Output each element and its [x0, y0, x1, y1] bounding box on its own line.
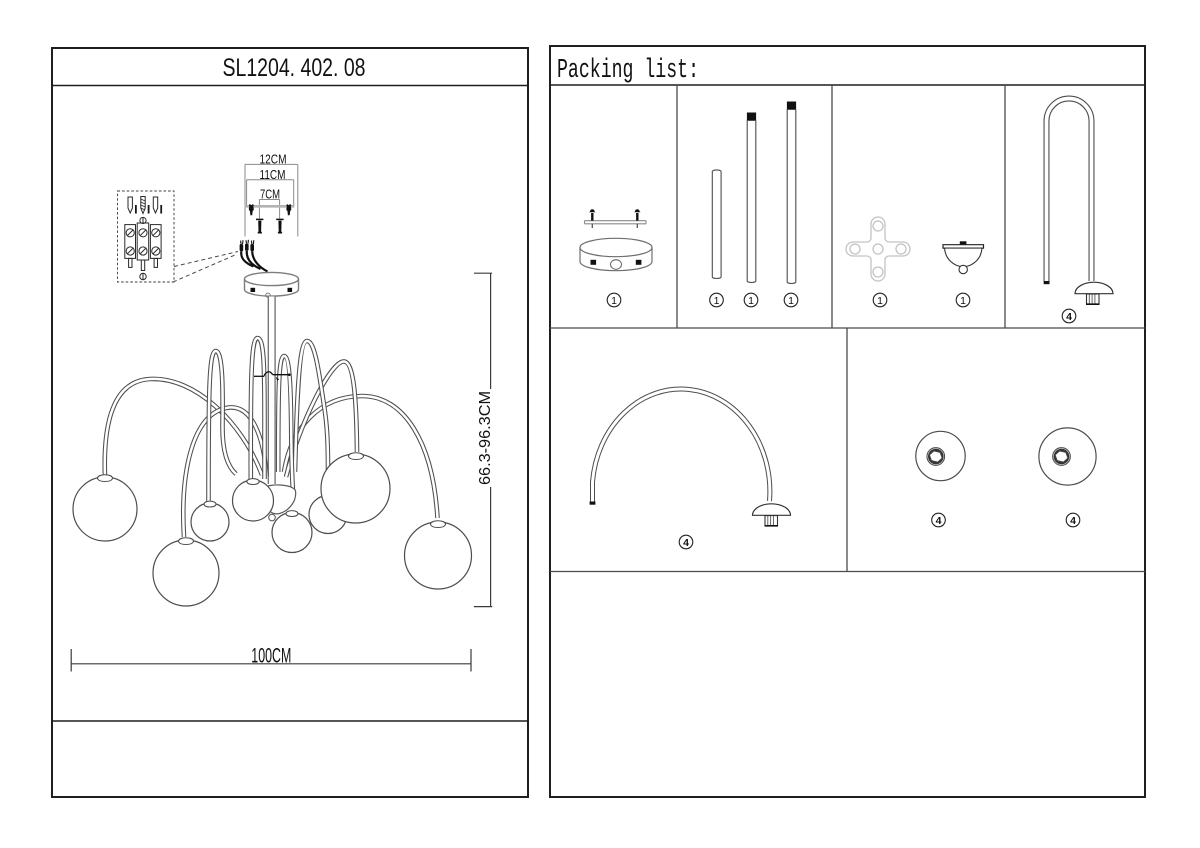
svg-text:4: 4 — [936, 515, 942, 527]
svg-text:12CM: 12CM — [260, 151, 287, 166]
svg-text:66.3-96.3CM: 66.3-96.3CM — [477, 391, 494, 485]
svg-text:7CM: 7CM — [260, 187, 280, 202]
svg-text:11CM: 11CM — [260, 167, 286, 182]
svg-text:1: 1 — [748, 295, 754, 307]
svg-text:1: 1 — [877, 295, 883, 307]
svg-text:1: 1 — [611, 295, 617, 307]
svg-text:1: 1 — [714, 295, 720, 307]
svg-text:Packing list:: Packing list: — [557, 56, 699, 86]
svg-text:100CM: 100CM — [251, 644, 291, 667]
svg-text:4: 4 — [1066, 311, 1072, 323]
svg-text:SL1204. 402. 08: SL1204. 402. 08 — [223, 54, 366, 82]
svg-text:4: 4 — [683, 537, 689, 549]
svg-text:1: 1 — [960, 295, 966, 307]
svg-text:1: 1 — [788, 295, 794, 307]
svg-text:4: 4 — [1070, 515, 1076, 527]
